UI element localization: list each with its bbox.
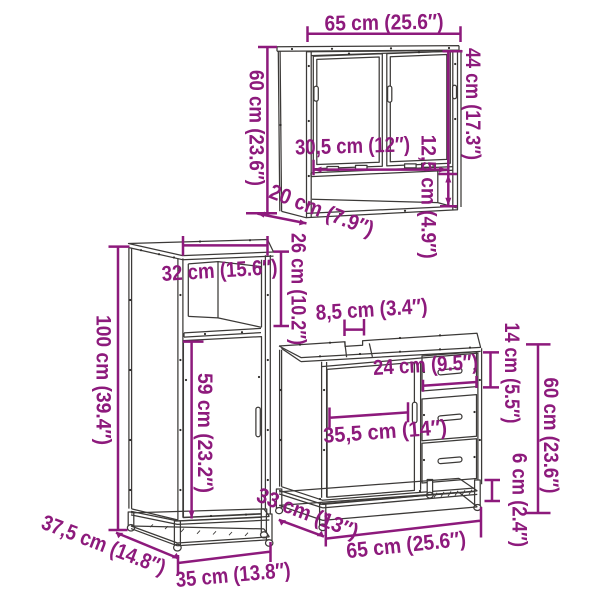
svg-text:60 cm (23.6″): 60 cm (23.6″) [539, 378, 563, 494]
svg-text:30,5 cm (12″): 30,5 cm (12″) [295, 132, 411, 159]
svg-text:59 cm (23.2″): 59 cm (23.2″) [193, 373, 217, 493]
svg-text:65 cm (25.6″): 65 cm (25.6″) [324, 10, 443, 36]
svg-text:12,5 cm (4.9″): 12,5 cm (4.9″) [417, 135, 441, 259]
svg-text:26 cm (10.2″): 26 cm (10.2″) [287, 233, 311, 345]
svg-text:14 cm (5.5″): 14 cm (5.5″) [500, 323, 524, 424]
svg-text:44 cm (17.3″): 44 cm (17.3″) [461, 48, 485, 160]
svg-text:60 cm (23.6″): 60 cm (23.6″) [245, 70, 269, 186]
svg-text:6 cm (2.4″): 6 cm (2.4″) [508, 453, 532, 547]
svg-text:100 cm (39.4″): 100 cm (39.4″) [92, 315, 116, 445]
